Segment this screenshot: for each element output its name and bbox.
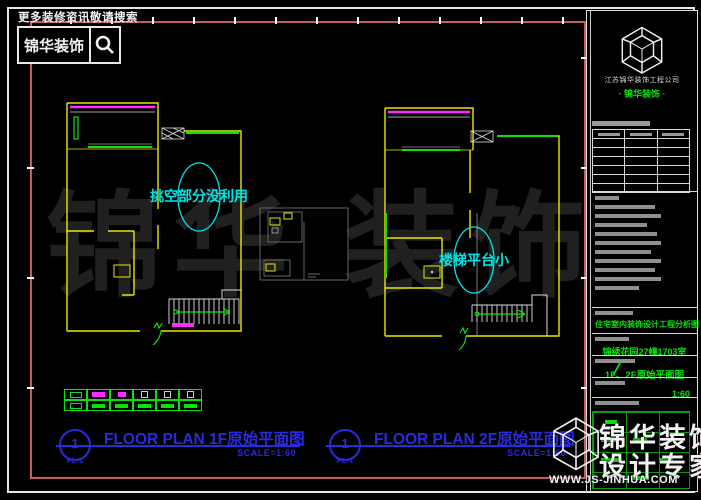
detail-bubble: 1 PL-1 bbox=[329, 429, 361, 461]
field-drawing-name: 1F、2F原始平面图 bbox=[592, 355, 697, 379]
company-name: 江苏锦华装饰工程公司 bbox=[587, 75, 697, 85]
plan2-annotation: 楼梯平台小 bbox=[439, 252, 509, 268]
company-tagline: · 锦华装饰 · bbox=[587, 87, 697, 100]
plan2-title-text: FLOOR PLAN 2F原始平面图 bbox=[374, 427, 575, 449]
titleblock-table bbox=[592, 129, 690, 193]
brand-watermark-url: WWW.JS-JINHUA.COM bbox=[549, 474, 678, 486]
legend-table bbox=[64, 389, 202, 411]
field-project: 住宅室内装饰设计工程分析图 bbox=[592, 307, 697, 334]
floor-plan-2f: 楼梯平台小 bbox=[382, 98, 574, 350]
drawing-border-bottom bbox=[30, 477, 586, 479]
plan2-door bbox=[446, 328, 468, 350]
cad-sheet: 锦华 装饰 更多装修资讯敬请搜索 锦华装饰 bbox=[0, 0, 701, 500]
plan2-stairs bbox=[472, 295, 547, 336]
field-label-bar bbox=[595, 401, 639, 405]
company-logo-cube bbox=[618, 25, 666, 75]
project-name: 住宅室内装饰设计工程分析图 bbox=[595, 319, 694, 330]
search-icon[interactable] bbox=[91, 28, 119, 62]
brand-cube-icon bbox=[549, 415, 603, 472]
floor-plan-1f: 挑空部分没利用 bbox=[64, 97, 256, 345]
brand-watermark: 锦华装饰 设计专家 WWW.JS-JINHUA.COM bbox=[549, 413, 699, 493]
sheet-number: PL-1 bbox=[61, 456, 89, 465]
field-label-bar bbox=[595, 381, 625, 385]
brand-search-box[interactable]: 锦华装饰 bbox=[17, 26, 121, 64]
plan1-stairs bbox=[169, 290, 241, 327]
plan1-walls bbox=[67, 103, 241, 331]
sheet-number: PL-1 bbox=[331, 456, 359, 465]
plan2-title: 1 PL-1 FLOOR PLAN 2F原始平面图 SCALE=1:60 bbox=[326, 424, 570, 464]
field-scale: 1:60 bbox=[592, 377, 697, 399]
detail-number: 1 bbox=[331, 436, 359, 451]
plan1-flue bbox=[162, 128, 184, 139]
title-block-bar bbox=[592, 121, 650, 126]
plan1-scale-text: SCALE=1:60 bbox=[237, 448, 296, 458]
plan1-annotation: 挑空部分没利用 bbox=[150, 188, 248, 204]
promo-text: 更多装修资讯敬请搜索 bbox=[18, 9, 138, 25]
plan1-door bbox=[139, 323, 162, 345]
plan2-flue bbox=[471, 131, 493, 142]
detail-inset bbox=[252, 196, 356, 288]
brand-name: 锦华装饰 bbox=[19, 28, 91, 62]
plan1-title-text: FLOOR PLAN 1F原始平面图 bbox=[104, 427, 305, 449]
field-label-bar bbox=[595, 311, 633, 315]
detail-bubble: 1 PL-1 bbox=[59, 429, 91, 461]
titleblock-notes bbox=[592, 191, 697, 308]
plan2-fixture-dot bbox=[431, 271, 433, 273]
plan1-title: 1 PL-1 FLOOR PLAN 1F原始平面图 SCALE=1:60 bbox=[56, 424, 300, 464]
field-label-bar bbox=[595, 337, 629, 341]
drawing-border-left bbox=[30, 21, 32, 479]
plan1-windows bbox=[70, 107, 239, 147]
field-address: 锦绣花园27幢1703室 bbox=[592, 333, 697, 357]
detail-number: 1 bbox=[61, 436, 89, 451]
